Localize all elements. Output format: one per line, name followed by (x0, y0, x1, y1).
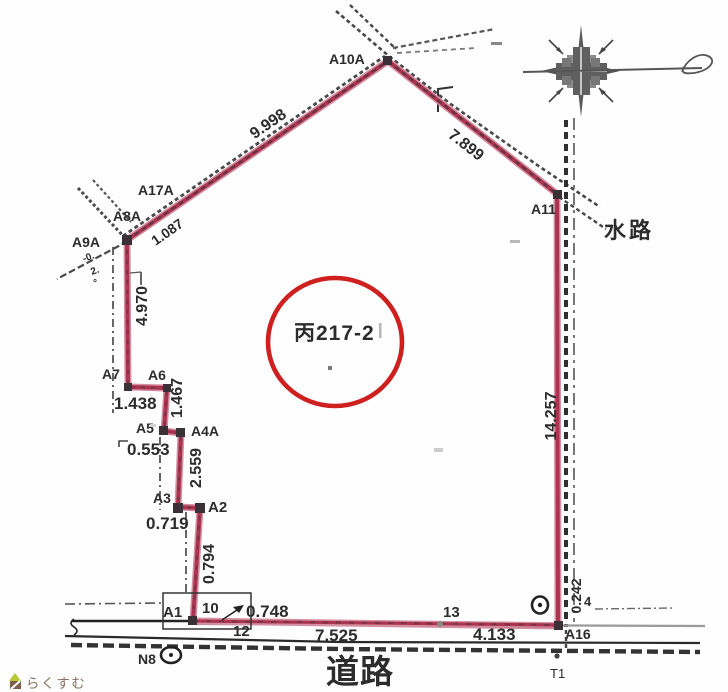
svg-text:A4A: A4A (191, 423, 219, 439)
svg-text:A6: A6 (148, 367, 166, 383)
svg-text:らくすむ: らくすむ (26, 676, 86, 691)
svg-text:A1: A1 (163, 604, 182, 621)
svg-text:A2: A2 (208, 499, 227, 516)
svg-text:4.133: 4.133 (473, 625, 516, 644)
svg-text:A3: A3 (153, 490, 171, 506)
svg-text:0.748: 0.748 (246, 602, 289, 621)
svg-text:A5: A5 (136, 420, 154, 436)
svg-text:0.794: 0.794 (201, 544, 218, 584)
svg-text:1.438: 1.438 (114, 394, 157, 413)
svg-text:4: 4 (584, 594, 592, 609)
svg-text:13: 13 (443, 604, 460, 621)
svg-text:12: 12 (233, 623, 250, 640)
svg-text:A8A: A8A (113, 208, 141, 224)
svg-text:0.553: 0.553 (127, 440, 170, 459)
svg-text:A11: A11 (531, 201, 556, 217)
svg-text:A17A: A17A (138, 182, 174, 198)
svg-text:1.467: 1.467 (169, 378, 186, 418)
svg-text:N8: N8 (138, 651, 156, 667)
svg-text:0.719: 0.719 (146, 514, 189, 533)
svg-text:2.: 2. (89, 265, 101, 278)
svg-text:T1: T1 (550, 666, 565, 681)
svg-text:2.559: 2.559 (188, 448, 205, 488)
svg-text:°: ° (93, 278, 97, 289)
svg-text:-0.: -0. (81, 250, 96, 264)
svg-text:水路: 水路 (604, 218, 654, 243)
svg-text:0.242: 0.242 (568, 578, 584, 613)
svg-text:4.970: 4.970 (134, 286, 151, 326)
svg-text:A9A: A9A (72, 234, 100, 250)
svg-text:丙217-2: 丙217-2 (294, 322, 375, 345)
svg-text:14.257: 14.257 (543, 391, 560, 440)
svg-text:10: 10 (202, 600, 219, 617)
svg-text:A10A: A10A (329, 51, 365, 67)
svg-text:道路: 道路 (326, 653, 394, 690)
svg-text:7.525: 7.525 (315, 626, 358, 645)
svg-text:A7: A7 (102, 366, 120, 382)
svg-text:A16: A16 (565, 626, 591, 642)
